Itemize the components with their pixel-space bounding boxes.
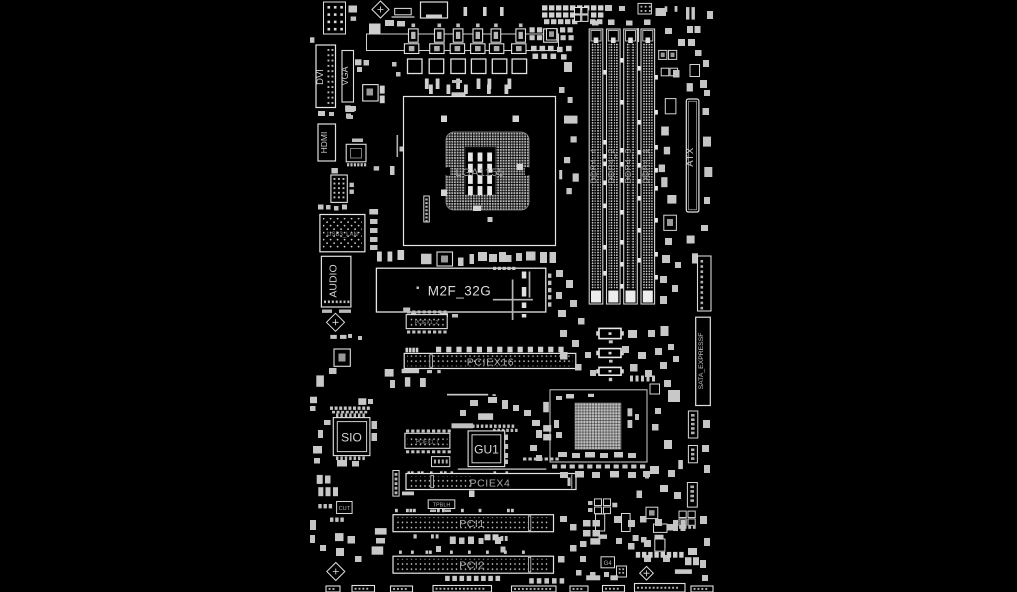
- svg-text:LGA1155: LGA1155: [455, 167, 504, 179]
- svg-text:CUT: CUT: [339, 506, 351, 512]
- svg-text:AUDIO: AUDIO: [328, 264, 340, 297]
- svg-text:HDMI: HDMI: [319, 132, 329, 154]
- svg-text:SIO: SIO: [341, 431, 362, 445]
- svg-text:PCIEX1_1: PCIEX1_1: [416, 440, 440, 446]
- svg-text:PCIEX16: PCIEX16: [467, 357, 514, 369]
- svg-text:PCIEX1_2: PCIEX1_2: [415, 320, 439, 326]
- svg-text:SATA_EXPRESSF: SATA_EXPRESSF: [698, 333, 705, 390]
- svg-text:DDR4_3: DDR4_3: [623, 148, 633, 183]
- svg-text:DDR4_4: DDR4_4: [589, 148, 599, 183]
- svg-text:VGA: VGA: [340, 66, 350, 85]
- svg-text:PCIEX4: PCIEX4: [470, 478, 511, 490]
- svg-text:PCI2: PCI2: [459, 559, 485, 571]
- svg-text:TPBLH: TPBLH: [433, 502, 451, 508]
- svg-text:GU1: GU1: [474, 443, 499, 457]
- svg-text:DDR4_1: DDR4_1: [640, 148, 650, 183]
- svg-text:DDR4_2: DDR4_2: [606, 148, 616, 183]
- svg-text:PCI1: PCI1: [459, 518, 485, 530]
- svg-text:M2F_32G: M2F_32G: [428, 284, 492, 299]
- svg-text:DVI: DVI: [315, 69, 326, 85]
- svg-text:ATX: ATX: [685, 147, 696, 167]
- svg-text:G4: G4: [604, 561, 613, 567]
- svg-text:USB3_LAN: USB3_LAN: [327, 232, 358, 238]
